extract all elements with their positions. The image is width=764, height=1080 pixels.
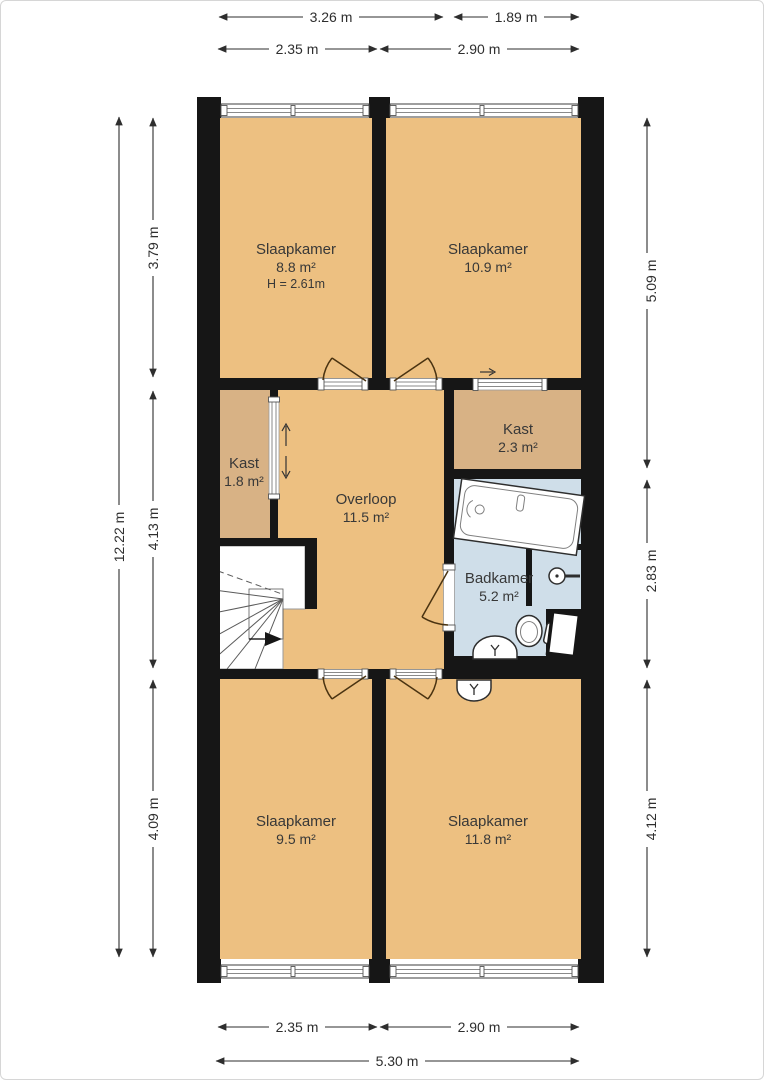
room-label-name: Kast	[503, 421, 534, 438]
room-label-area: 2.3 m²	[498, 439, 538, 455]
room-label-area: 8.8 m²	[276, 259, 316, 275]
room-label-area: 11.8 m²	[465, 831, 512, 847]
dim-top-inner-right: 2.90 m	[458, 41, 501, 57]
floor-plan: Slaapkamer 8.8 m² H = 2.61m Slaapkamer 1…	[1, 1, 764, 1080]
wall-bottom-pier-left	[197, 959, 221, 983]
wall-centre-bottom	[372, 679, 386, 959]
window-top-left	[221, 104, 369, 117]
dim-right-top: 5.09 m	[643, 260, 659, 303]
dim-bottom-left: 2.35 m	[276, 1019, 319, 1035]
dim-top-outer-left: 3.26 m	[310, 9, 353, 25]
room-label-area: 9.5 m²	[276, 831, 316, 847]
duct-shaft	[548, 612, 580, 657]
room-label-name: Kast	[229, 455, 260, 472]
floor-plan-page: Slaapkamer 8.8 m² H = 2.61m Slaapkamer 1…	[0, 0, 764, 1080]
dim-bottom-total: 5.30 m	[376, 1053, 419, 1069]
dim-bottom-right: 2.90 m	[458, 1019, 501, 1035]
room-label-name: Badkamer	[465, 570, 533, 587]
dim-left-middle: 4.13 m	[145, 508, 161, 551]
wall-right	[581, 97, 604, 983]
window-bottom-right	[390, 965, 578, 978]
dim-left-total: 12.22 m	[111, 512, 127, 563]
room-landing	[278, 390, 444, 669]
room-label-name: Overloop	[336, 491, 397, 508]
wall-top-pier-right	[578, 97, 604, 118]
wall-top-pier-left	[197, 97, 221, 118]
wall-centre-top	[372, 118, 386, 378]
dim-top-outer-right: 1.89 m	[495, 9, 538, 25]
dim-left-bottom: 4.09 m	[145, 798, 161, 841]
washbasin-bedroom	[457, 680, 491, 701]
window-top-right	[390, 104, 578, 117]
dim-right-middle: 2.83 m	[643, 550, 659, 593]
toilet	[516, 616, 542, 647]
room-label-area: 10.9 m²	[464, 259, 512, 275]
room-label-area: 11.5 m²	[343, 509, 390, 525]
dim-left-top: 3.79 m	[145, 227, 161, 270]
room-label-name: Slaapkamer	[256, 813, 336, 830]
room-label-area: 5.2 m²	[479, 588, 519, 604]
room-label-height: H = 2.61m	[267, 277, 325, 291]
room-label-name: Slaapkamer	[448, 241, 528, 258]
room-label-name: Slaapkamer	[256, 241, 336, 258]
room-label-area: 1.8 m²	[224, 473, 264, 489]
wall-bottom-pier-mid	[369, 959, 390, 983]
wall-stairs-top	[197, 538, 317, 546]
wall-bathroom-closet	[444, 469, 581, 479]
wall-stairs-stub	[305, 538, 317, 609]
wall-top-pier-mid	[369, 97, 390, 118]
wall-bottom-pier-right	[578, 959, 604, 983]
room-label-name: Slaapkamer	[448, 813, 528, 830]
dim-right-bottom: 4.12 m	[643, 798, 659, 841]
dim-top-inner-left: 2.35 m	[276, 41, 319, 57]
window-bottom-left	[221, 965, 369, 978]
